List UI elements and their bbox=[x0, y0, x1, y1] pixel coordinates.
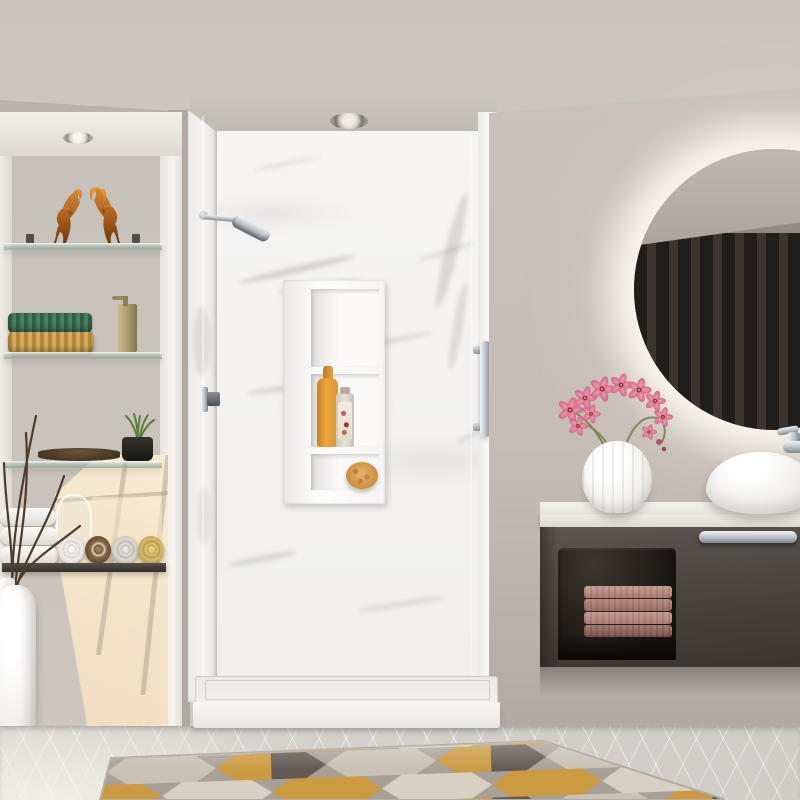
glass-shelf-1 bbox=[4, 243, 162, 250]
shelf-bracket bbox=[132, 234, 140, 243]
soap-dispenser bbox=[118, 304, 137, 352]
under-cabinet-shadow bbox=[540, 667, 800, 695]
shower-tray-front bbox=[193, 702, 500, 728]
rolled-towel-gray bbox=[112, 536, 138, 564]
niche-compartment-top bbox=[311, 289, 379, 367]
bath-sponge bbox=[346, 462, 378, 489]
woven-towel-green bbox=[8, 313, 92, 333]
shower-tray-top bbox=[195, 676, 498, 703]
door-hinge-knob bbox=[207, 392, 220, 406]
countertop-edge bbox=[540, 514, 800, 527]
shelf-inner-shadow bbox=[558, 634, 676, 660]
faucet-spout bbox=[783, 441, 800, 453]
glass-door-edge bbox=[470, 134, 472, 686]
woven-towel-tan bbox=[8, 332, 94, 353]
rolled-towel-yellow bbox=[138, 536, 164, 564]
dispenser-pump-stem bbox=[123, 296, 128, 306]
mauve-towel bbox=[584, 599, 672, 611]
geometric-rug bbox=[50, 735, 740, 800]
ceiling-spotlight-icon bbox=[330, 113, 368, 129]
dry-branches bbox=[0, 408, 100, 603]
glass-shelf-2 bbox=[4, 352, 162, 359]
plant-pot bbox=[122, 437, 153, 461]
vanity-open-shelf bbox=[558, 548, 676, 660]
conditioner-cap bbox=[340, 387, 350, 394]
ceiling bbox=[0, 0, 800, 110]
shower-tray-inner-line bbox=[205, 680, 490, 700]
mauve-towel bbox=[584, 612, 672, 624]
shampoo-bottle bbox=[317, 378, 338, 447]
vanity-drawer-handle bbox=[699, 531, 797, 543]
horse-figurines bbox=[48, 186, 128, 246]
vanity-left-face bbox=[540, 527, 558, 667]
orchid-vase bbox=[582, 441, 652, 513]
mauve-towel bbox=[584, 586, 672, 598]
niche-spotlight-icon bbox=[63, 132, 93, 144]
floor-vase bbox=[0, 585, 36, 742]
shelf-bracket bbox=[26, 234, 34, 243]
bathroom-scene bbox=[0, 0, 800, 800]
niche-ceiling bbox=[0, 112, 182, 156]
conditioner-label bbox=[338, 402, 352, 440]
